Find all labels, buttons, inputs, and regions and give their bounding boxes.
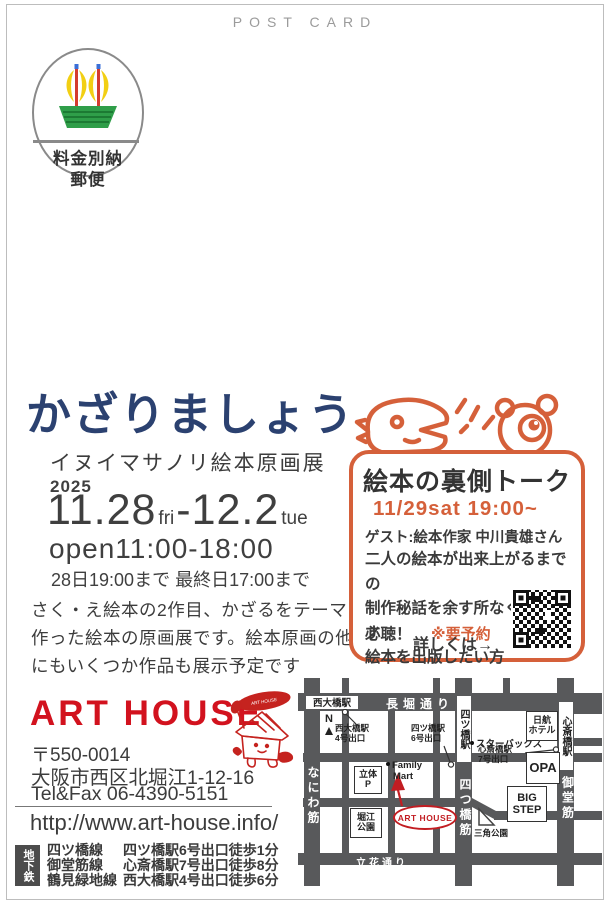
subway-line-name: 四ツ橋線 [47, 843, 123, 858]
talk-guest: ゲスト:絵本作家 中川貴雄さん [365, 526, 562, 547]
access-map: 長堀通り 西大橋駅 四ツ橋駅 心斎橋駅 N 西大橋駅 4号出口 四ツ橋駅 6号出… [298, 678, 602, 886]
exhibition-title: かざりましょう [26, 378, 355, 443]
doodle-creatures [353, 390, 583, 456]
postcard: POST CARD 料金別納 郵便 かざりましょう イヌイマサノリ絵本原画展 2… [0, 0, 610, 910]
compass-n-label: N [325, 713, 333, 725]
details-label: 詳しくは→ [413, 631, 493, 655]
date-start: 11.28 [47, 486, 156, 535]
exit-marker-nishiohashi [342, 709, 347, 714]
date-end-day: tue [281, 508, 307, 530]
exit-text: 7号出口 [478, 754, 512, 764]
subway-row: 御堂筋線 心斎橋駅7号出口徒歩8分 [47, 858, 279, 873]
subway-row: 鶴見緑地線 西大橋駅4号出口徒歩6分 [47, 873, 279, 888]
open-hours: open11:00-18:00 [49, 533, 274, 565]
subway-access-list: 四ツ橋線 四ツ橋駅6号出口徒歩1分 御堂筋線 心斎橋駅7号出口徒歩8分 鶴見緑地… [47, 843, 279, 887]
station-nishiohashi: 西大橋駅 [306, 696, 358, 710]
exit-label-nishiohashi: 西大橋駅 4号出口 [335, 723, 369, 743]
landmark-text: STEP [513, 804, 542, 816]
road-stub-right2 [574, 738, 602, 746]
poi-dot-icon [470, 741, 474, 745]
landmark-text: ホテル [528, 726, 555, 736]
subway-badge: 地下鉄 [15, 845, 40, 886]
subway-line-name: 鶴見緑地線 [47, 873, 123, 888]
road-stub-top [503, 678, 510, 693]
date-end: 12.2 [192, 486, 280, 535]
landmark-opa: OPA [526, 752, 560, 784]
exit-text: 四ツ橋駅 [411, 723, 445, 733]
separator-line [15, 806, 272, 807]
station-yotsubashi: 四ツ橋駅 [457, 696, 471, 762]
subway-badge-label: 地下鉄 [22, 849, 33, 882]
landmark-text: BIG [517, 792, 537, 804]
venue-url: http://www.art-house.info/ [30, 810, 278, 836]
station-shinsaibashi: 心斎橋駅 [559, 702, 573, 770]
stamp-mail-text: 郵便 [34, 166, 142, 190]
road-label-tachibana: 立花通り [356, 854, 408, 869]
landmark-parking: 立体 P [354, 766, 382, 794]
talk-must-listen: 必聴！ [365, 622, 412, 644]
landmark-familymart: Family Mart [386, 760, 422, 783]
exhibition-description: さく・え絵本の2作目、かざるをテーマに 作った絵本の原画展です。絵本原画の他 に… [31, 596, 365, 680]
subway-row: 四ツ橋線 四ツ橋駅6号出口徒歩1分 [47, 843, 279, 858]
fish-doodle-icon [368, 400, 447, 453]
description-line: にもいくつか作品も展示予定です [31, 652, 365, 680]
description-line: 作った絵本の原画展です。絵本原画の他 [31, 624, 365, 652]
date-start-day: fri [158, 508, 174, 530]
hours-note: 28日19:00まで 最終日17:00まで [51, 566, 310, 592]
subway-line-name: 御堂筋線 [47, 858, 123, 873]
poi-dot-icon [386, 762, 390, 766]
compass: N [325, 714, 333, 735]
subway-access: 四ツ橋駅6号出口徒歩1分 [123, 843, 279, 858]
exit-marker-yotsubashi [448, 762, 453, 767]
road-label-naniwa: なにわ筋 [305, 766, 322, 826]
landmark-horie-park: 堀江 公園 [350, 808, 382, 838]
talk-datetime: 11/29sat 19:00~ [373, 497, 538, 521]
road-label-nagahori: 長堀通り [386, 695, 454, 712]
postcard-label: POST CARD [0, 14, 610, 30]
subway-access: 心斎橋駅7号出口徒歩8分 [123, 858, 279, 873]
talk-event: 絵本の裏側トーク 11/29sat 19:00~ ゲスト:絵本作家 中川貴雄さん… [349, 388, 587, 674]
description-line: さく・え絵本の2作目、かざるをテーマに [31, 596, 365, 624]
landmark-text: Family [392, 760, 422, 771]
exit-text: 西大橋駅 [335, 723, 369, 733]
exit-text: 4号出口 [335, 733, 369, 743]
stamp-divider [33, 140, 139, 143]
exit-text: 6号出口 [411, 733, 445, 743]
landmark-text: OPA [529, 761, 556, 775]
landmark-text: Mart [386, 771, 422, 782]
talk-box: 絵本の裏側トーク 11/29sat 19:00~ ゲスト:絵本作家 中川貴雄さん… [349, 450, 585, 662]
landmark-text: 公園 [357, 823, 375, 833]
compass-arrow-icon [325, 727, 333, 735]
exhibition-subtitle: イヌイマサノリ絵本原画展 [50, 447, 326, 477]
landmark-bigstep: BIG STEP [507, 786, 547, 822]
road-h3-left [303, 798, 472, 807]
date-dash: - [176, 486, 191, 535]
road-stub-right1 [574, 706, 602, 714]
landmark-sankaku-park: 三角公園 [474, 827, 508, 839]
qr-code [511, 588, 573, 650]
road-label-midosuji: 御堂筋 [560, 776, 577, 821]
road-label-yotsubashi-suji: 四つ橋筋 [457, 778, 474, 838]
postage-stamp: 料金別納 郵便 [32, 48, 144, 177]
exit-label-yotsubashi: 四ツ橋駅 6号出口 [411, 723, 445, 743]
venue-tel: Tel&Fax 06-4390-5151 [31, 783, 228, 806]
landmark-text: P [365, 780, 371, 790]
landmark-nikko-hotel: 日航 ホテル [526, 711, 558, 741]
talk-heading: 絵本の裏側トーク [353, 462, 581, 498]
fish-tail [358, 434, 367, 442]
sailboat-icon [47, 60, 129, 138]
map-arthouse-marker: ART HOUSE [393, 805, 457, 830]
landmark-text: ART HOUSE [398, 813, 453, 823]
subway-access: 西大橋駅4号出口徒歩6分 [123, 873, 279, 888]
exhibition-dates: 11.28 fri - 12.2 tue [47, 486, 310, 535]
